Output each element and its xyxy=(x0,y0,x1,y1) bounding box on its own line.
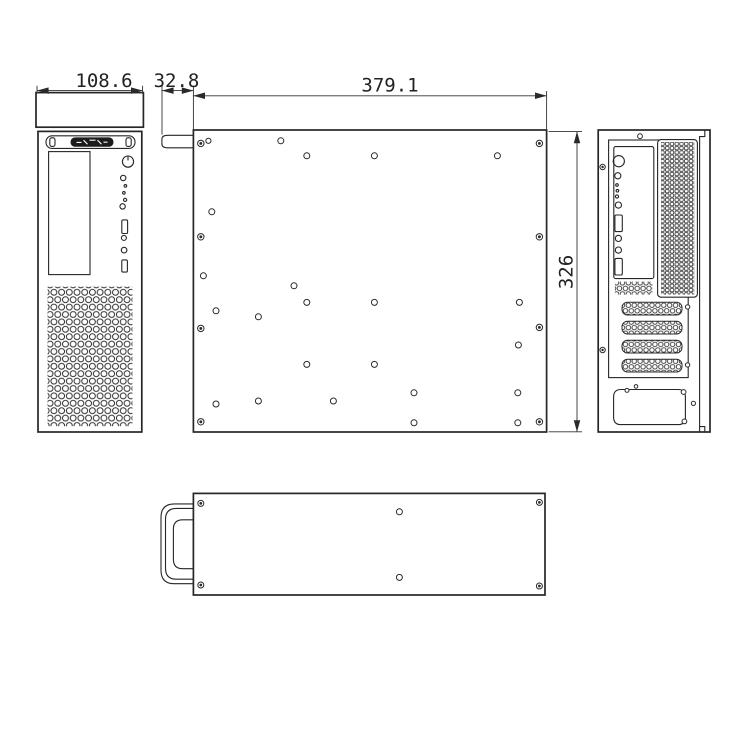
dim-front-width: 108.6 xyxy=(37,70,143,93)
top-outline xyxy=(193,493,545,595)
headphone-jack xyxy=(121,247,127,253)
dim-chassis-height-label: 326 xyxy=(556,255,578,289)
rear-right-flange xyxy=(700,130,705,432)
expansion-slot-covers xyxy=(622,302,682,372)
dim-handle-depth-label: 32.8 xyxy=(154,70,200,92)
io-round-connector xyxy=(613,156,624,167)
dim-chassis-length-label: 379.1 xyxy=(361,75,418,97)
top-view xyxy=(161,493,545,595)
chassis-technical-drawing: 108.6 32.8 379.1 326 xyxy=(0,0,750,750)
rear-vent-grid xyxy=(661,142,694,295)
side-mounting-holes xyxy=(200,138,522,426)
handle-tab xyxy=(162,135,194,148)
io-jack-2 xyxy=(615,202,621,208)
io-led-2 xyxy=(616,189,619,192)
io-led-1 xyxy=(616,184,619,187)
dim-chassis-length: 379.1 xyxy=(193,75,546,130)
dim-chassis-height: 326 xyxy=(549,132,582,432)
top-holes xyxy=(396,509,402,581)
handle-grip-cutout xyxy=(173,520,193,569)
io-connectors xyxy=(613,156,624,275)
front-vent-grille xyxy=(48,287,133,427)
front-view xyxy=(36,93,143,432)
logo-bar-end-right xyxy=(126,138,131,147)
dim-front-width-label: 108.6 xyxy=(75,70,132,92)
io-vent-strip xyxy=(615,282,653,295)
led-indicator-2 xyxy=(123,192,126,195)
mic-jack xyxy=(121,235,126,240)
psu-vent xyxy=(614,390,686,425)
io-usb-1 xyxy=(615,215,622,232)
led-indicator-1 xyxy=(124,185,127,188)
usb-port-1 xyxy=(122,220,128,234)
io-led-3 xyxy=(615,195,618,198)
led-indicator-3 xyxy=(124,198,127,201)
io-jack-4 xyxy=(615,247,621,253)
rear-right-flange-foot xyxy=(700,427,705,432)
top-screw-holes xyxy=(198,499,543,589)
io-usb-2 xyxy=(615,258,622,275)
io-jack-3 xyxy=(615,235,621,241)
reset-button xyxy=(121,175,126,180)
dim-handle-depth: 32.8 xyxy=(154,70,200,135)
front-top-cover xyxy=(36,93,143,128)
drive-bay-cover xyxy=(49,152,90,275)
side-screw-holes xyxy=(198,140,543,425)
rear-screw-holes xyxy=(600,164,605,352)
usb-port-2 xyxy=(122,260,128,272)
side-view xyxy=(162,130,547,432)
rear-view xyxy=(598,130,710,432)
side-panel-outline xyxy=(193,130,546,432)
logo-bar-end-left xyxy=(50,138,55,147)
io-jack-1 xyxy=(615,173,621,179)
drawing-canvas: 108.6 32.8 379.1 326 xyxy=(0,0,750,750)
audio-jack-top xyxy=(120,204,125,209)
front-panel-controls xyxy=(120,156,134,272)
